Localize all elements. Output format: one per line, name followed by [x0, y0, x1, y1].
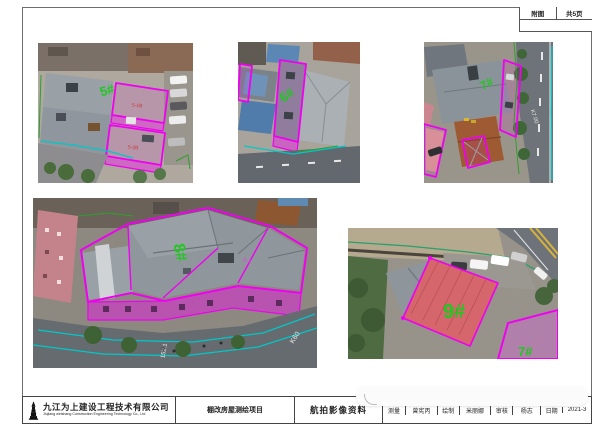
corner-page-table: 附图 共5页: [519, 7, 592, 32]
project-name-cell: 棚改房屋测绘项目: [175, 397, 294, 423]
building-label-8: 8#: [169, 242, 189, 263]
corner-cell-left: 附图: [520, 7, 556, 19]
pink-building: [33, 210, 78, 303]
field-label-survey: 测量: [383, 406, 405, 415]
building-label-7-partial: 7#: [518, 344, 533, 359]
aerial-photo-building-5: 5# 5-1B 5-2B: [38, 43, 193, 183]
company-name-cn: 九江为上建设工程技术有限公司: [43, 403, 169, 412]
building-label-9: 9#: [443, 301, 465, 323]
aerial-photo-building-7: K7.00: [424, 42, 553, 183]
aerial-photo-building-9: 9# 7#: [348, 228, 558, 359]
field-value-drawn: 米丽娜: [459, 406, 491, 415]
company-logo-tower-icon: [27, 401, 40, 420]
field-value-survey: 曾宪丙: [405, 406, 437, 415]
building-outline-5: [105, 83, 168, 173]
field-label-checked: 审核: [490, 406, 512, 415]
field-label-drawn: 绘制: [437, 406, 459, 415]
aerial-photo-building-8: 8# 8-1 152.1 K60: [33, 198, 317, 368]
aerial-photo-building-6: 6#: [238, 42, 360, 183]
company-cell: 九江为上建设工程技术有限公司 Jiujiang weishang Constru…: [23, 397, 175, 423]
company-name-en: Jiujiang weishang Construction Engineeri…: [43, 413, 169, 417]
stamp-curl-mark: [364, 394, 377, 405]
roof-label-5-1: 5-1B: [132, 102, 144, 109]
roof-label-5-2: 5-2B: [128, 145, 140, 152]
field-label-date: 日期: [540, 406, 562, 415]
field-value-checked: 杨志: [512, 406, 540, 415]
drawing-sheet: 附图 共5页: [0, 0, 600, 430]
corner-cell-right: 共5页: [556, 7, 593, 19]
field-value-date: 2021-3: [562, 407, 591, 413]
stamp-whiteout-blob: [356, 386, 588, 406]
